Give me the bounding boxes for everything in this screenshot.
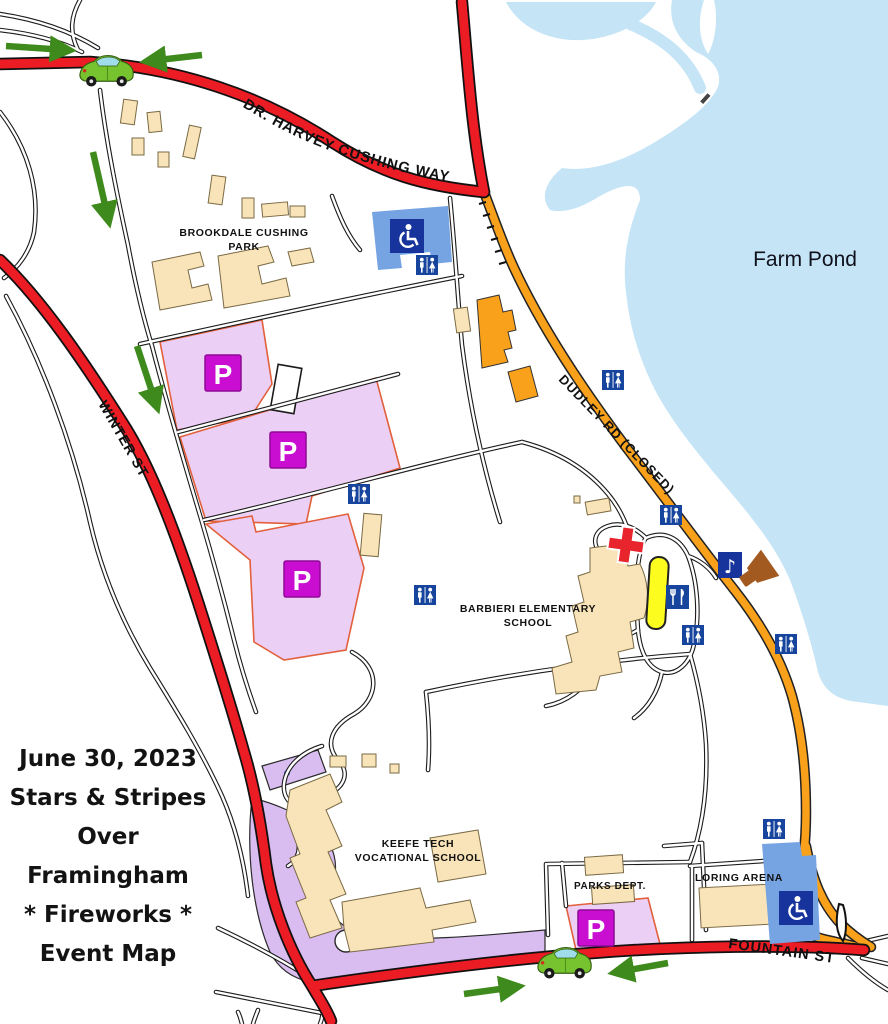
keefe-label: KEEFE TECH [382,838,455,850]
map-title: June 30, 2023 Stars & Stripes Over Frami… [0,740,216,974]
brookdale-label: BROOKDALE CUSHING [179,227,308,239]
direction-arrow-icon [464,987,515,994]
title-line: Stars & Stripes [0,779,216,818]
svg-text:VOCATIONAL SCHOOL: VOCATIONAL SCHOOL [355,852,481,864]
farm-pond-label: Farm Pond [753,248,857,271]
barbieri-building [552,544,647,694]
restroom-icon [602,370,624,390]
barbieri-label: BARBIERI ELEMENTARY [460,603,596,615]
dudley-orange-buildings [477,295,538,402]
title-line: * Fireworks * [0,896,216,935]
parking-icon [205,355,241,391]
handicap-parking-icon [390,219,424,253]
svg-text:♪: ♪ [724,556,736,578]
direction-arrow-icon [150,55,202,61]
handicap-parking-icon [779,891,813,925]
ramp-island [837,904,846,941]
svg-text:SCHOOL: SCHOOL [504,617,553,629]
loring-arena-label: LORING ARENA [695,872,783,884]
direction-arrow-icon [93,152,108,218]
music-icon: ♪ [718,552,742,578]
restroom-icon [763,819,785,839]
direction-arrow-icon [618,963,668,972]
loring-arena-building [699,884,773,928]
event-map: P [0,0,888,1024]
parking-icon [284,561,320,597]
road-label-winter: WINTER ST [95,398,152,480]
restroom-icon [416,255,438,275]
svg-text:PARK: PARK [228,241,259,253]
parking-icon [578,910,614,946]
restroom-icon [660,505,682,525]
direction-arrow-icon [6,46,66,50]
restroom-icon [682,625,704,645]
parking-icon [270,432,306,468]
title-line: Over [0,818,216,857]
restroom-icon [775,634,797,654]
title-line: June 30, 2023 [0,740,216,779]
food-icon [666,585,689,609]
title-line: Event Map [0,935,216,974]
title-line: Framingham [0,857,216,896]
restroom-icon [348,484,370,504]
restroom-icon [414,585,436,605]
parks-dept-building [584,855,623,876]
parks-dept-label: PARKS DEPT. [574,881,646,892]
stage-area [646,557,669,630]
